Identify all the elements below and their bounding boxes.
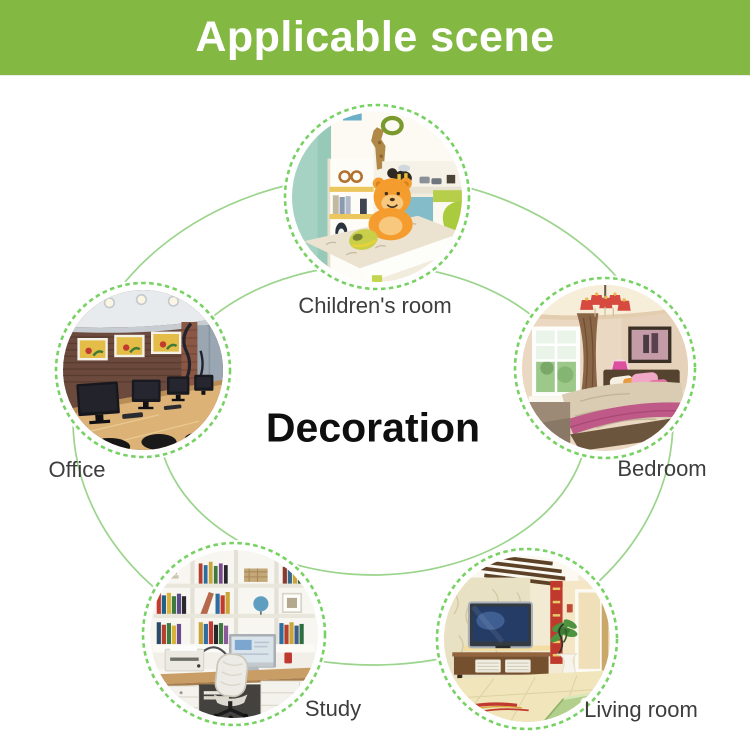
scene-circle-bedroom	[512, 275, 698, 461]
scene-circle-office	[53, 280, 233, 460]
label-living-room: Living room	[584, 697, 698, 723]
scene-circle-children-room	[282, 102, 472, 292]
scene-circle-study	[140, 540, 328, 728]
label-children-room: Children's room	[298, 293, 451, 319]
label-study: Study	[305, 696, 361, 722]
study-photo	[140, 540, 328, 728]
applicable-scene-infographic: Applicable scene	[0, 0, 750, 750]
children-room-photo	[282, 102, 472, 292]
label-bedroom: Bedroom	[617, 456, 706, 482]
center-title: Decoration	[266, 405, 480, 452]
office-photo	[53, 280, 233, 460]
bedroom-photo	[512, 275, 698, 461]
label-office: Office	[48, 457, 105, 483]
